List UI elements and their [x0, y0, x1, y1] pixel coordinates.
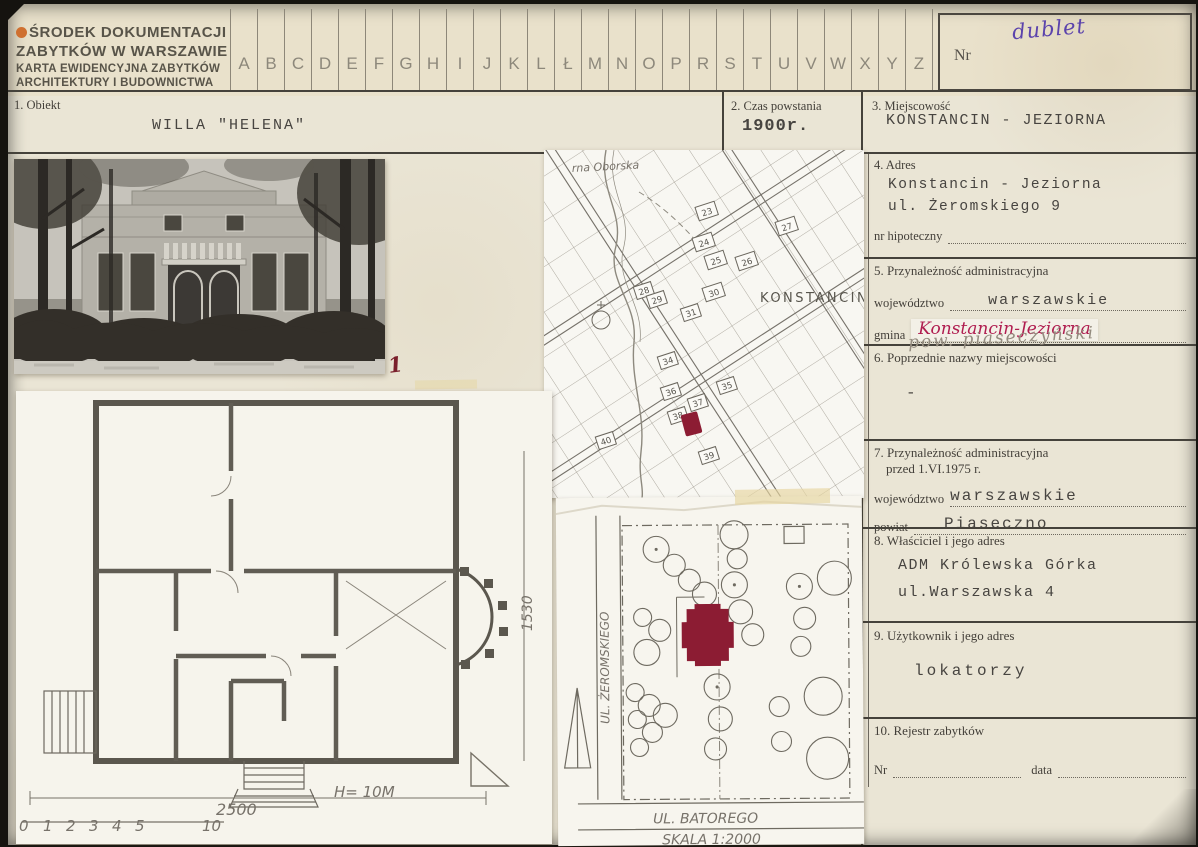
- field10-rejestr: 10. Rejestr zabytków Nr data: [874, 723, 1186, 778]
- field5-gmina-label: gmina: [874, 328, 905, 343]
- field10-nr-label: Nr: [874, 763, 887, 778]
- alphabet-letter: H: [419, 9, 446, 90]
- plan-outer-walls: [96, 403, 456, 761]
- field8-label: 8. Właściciel i jego adres: [874, 533, 1186, 549]
- field4-value-line2: ul. Żeromskiego 9: [888, 199, 1186, 215]
- plan-scale-bar: 0 1 2 3 4 5 10: [19, 817, 224, 835]
- field4-value-line1: Konstancin - Jeziorna: [888, 177, 1186, 193]
- org-line3: KARTA EWIDENCYJNA ZABYTKÓW: [16, 62, 228, 76]
- plan-interior-walls: [96, 403, 456, 761]
- field9-label: 9. Użytkownik i jego adres: [874, 628, 1186, 644]
- field4-label: 4. Adres: [874, 158, 1186, 173]
- org-line2: ZABYTKÓW W WARSZAWIE: [16, 43, 228, 62]
- field9-value: lokatorzy: [914, 662, 1186, 680]
- field3-value: KONSTANCIN - JEZIORNA: [886, 112, 1107, 129]
- alphabet-letter: Z: [905, 9, 932, 90]
- alphabet-letter: B: [257, 9, 284, 90]
- field7-przynaleznosc-1975: 7. Przynależność administracyjna przed 1…: [874, 445, 1186, 535]
- location-map: 23 27 24 25 26 28 29 30 31 34 35 36 37 3…: [544, 150, 864, 498]
- alphabet-letter: Y: [878, 9, 905, 90]
- alphabet-letter: R: [689, 9, 716, 90]
- field-divider: [862, 257, 1196, 259]
- plan-corner-mark: [471, 753, 508, 786]
- field6-label: 6. Poprzednie nazwy miejscowości: [874, 350, 1186, 366]
- tape-stain: [735, 488, 830, 505]
- field1-value: WILLA "HELENA": [152, 117, 306, 134]
- field-divider: [862, 621, 1196, 623]
- plan-left-steps: [44, 691, 96, 753]
- paper-fold-shadow: [1126, 789, 1196, 845]
- alphabet-index-strip: A B C D E F G H I J K L Ł M N O P R S T …: [230, 9, 932, 90]
- alphabet-letter: Ł: [554, 9, 581, 90]
- field7-wojewodztwo-label: województwo: [874, 492, 944, 507]
- floor-plan: 2500 H= 10M 1530 0 1 2 3 4 5 10: [16, 391, 552, 844]
- field-divider: [862, 717, 1196, 719]
- alphabet-letter: S: [716, 9, 743, 90]
- field6-poprzednie-nazwy: 6. Poprzednie nazwy miejscowości -: [874, 350, 1186, 402]
- field5-wojewodztwo-value: warszawskie: [988, 292, 1109, 309]
- siteplan-left-street: UL. ŻEROMSKIEGO: [596, 516, 622, 800]
- alphabet-letter: F: [365, 9, 392, 90]
- field10-data-label: data: [1031, 763, 1052, 778]
- scale-tick: 4: [112, 817, 122, 835]
- alphabet-letter: N: [608, 9, 635, 90]
- alphabet-letter: J: [473, 9, 500, 90]
- scale-tick: 3: [89, 817, 99, 835]
- photo-balustrade: [164, 243, 241, 259]
- scale-tick: 0: [19, 817, 29, 835]
- siteplan-bottom-street: UL. BATOREGO SKALA 1:2000: [578, 802, 864, 846]
- field5-wojewodztwo-label: województwo: [874, 296, 944, 311]
- alphabet-letter: X: [851, 9, 878, 90]
- org-line1: ŚRODEK DOKUMENTACJI: [16, 24, 228, 43]
- logo-dot-icon: [16, 27, 27, 38]
- field7-label-line2: przed 1.VI.1975 r.: [886, 461, 1186, 477]
- plan-dimension-height: 1530: [520, 451, 536, 761]
- alphabet-letter: P: [662, 9, 689, 90]
- plan-height-value: 1530: [520, 595, 536, 631]
- siteplan-outbuilding: [784, 526, 804, 543]
- field-divider: [862, 527, 1196, 529]
- field6-value: -: [906, 384, 1186, 402]
- blank-dotted-line: [893, 777, 1021, 778]
- field7-powiat-value: Piaseczno: [944, 515, 1048, 533]
- alphabet-letter: K: [500, 9, 527, 90]
- alphabet-letter: U: [770, 9, 797, 90]
- scale-tick: 5: [135, 817, 145, 835]
- plan-width-value: 2500: [216, 800, 257, 819]
- siteplan-subject-building: [682, 604, 734, 666]
- field8-wlasciciel: 8. Właściciel i jego adres ADM Królewska…: [874, 533, 1186, 601]
- alphabet-letter: I: [446, 9, 473, 90]
- field7-wojewodztwo-value: warszawskie: [950, 487, 1078, 505]
- villa-photo-drawing: [14, 159, 385, 374]
- field9-uzytkownik: 9. Użytkownik i jego adres lokatorzy: [874, 628, 1186, 680]
- field1-label: 1. Obiekt: [14, 98, 61, 113]
- scanned-heritage-card: ŚRODEK DOKUMENTACJI ZABYTKÓW W WARSZAWIE…: [0, 0, 1198, 847]
- alphabet-letter: A: [230, 9, 257, 90]
- plan-height-label: H= 10M: [334, 783, 395, 801]
- alphabet-letter: L: [527, 9, 554, 90]
- plan-dimension-width: 2500: [30, 791, 486, 819]
- alphabet-letter: G: [392, 9, 419, 90]
- org-line4: ARCHITEKTURY I BUDOWNICTWA: [16, 76, 228, 90]
- alphabet-letter: C: [284, 9, 311, 90]
- nr-box: Nr dublet: [938, 13, 1192, 91]
- scan-corner-artifact: [8, 4, 24, 20]
- divider: [722, 92, 724, 153]
- scale-tick: 2: [66, 817, 76, 835]
- siteplan-street-left-label: UL. ŻEROMSKIEGO: [597, 611, 613, 723]
- field8-value-line2: ul.Warszawska 4: [898, 584, 1186, 601]
- field2-label: 2. Czas powstania: [731, 99, 822, 114]
- siteplan-scale-label: SKALA 1:2000: [662, 832, 761, 846]
- field7-label-line1: 7. Przynależność administracyjna: [874, 445, 1186, 461]
- field10-label: 10. Rejestr zabytków: [874, 723, 1186, 739]
- field5-label: 5. Przynależność administracyjna: [874, 263, 1186, 279]
- site-plan: UL. ŻEROMSKIEGO: [556, 496, 864, 846]
- column-inner-line: [868, 153, 869, 787]
- alphabet-letter: M: [581, 9, 608, 90]
- alphabet-letter: T: [743, 9, 770, 90]
- north-arrow-icon: [564, 688, 591, 768]
- site-plan-drawing: UL. ŻEROMSKIEGO: [556, 496, 864, 846]
- location-map-drawing: 23 27 24 25 26 28 29 30 31 34 35 36 37 3…: [544, 150, 864, 498]
- map-city-label: KONSTANCIN: [760, 291, 864, 306]
- blank-dotted-line: [1058, 777, 1186, 778]
- alphabet-letter: E: [338, 9, 365, 90]
- siteplan-street-bottom-label: UL. BATOREGO: [653, 811, 758, 828]
- nr-label: Nr: [954, 47, 971, 65]
- field-divider: [862, 439, 1196, 441]
- divider: [932, 9, 933, 90]
- header-divider: [8, 90, 1196, 92]
- map-street-grid: [544, 150, 864, 498]
- floor-plan-drawing: 2500 H= 10M 1530 0 1 2 3 4 5 10: [16, 391, 552, 844]
- alphabet-letter: W: [824, 9, 851, 90]
- org-title-block: ŚRODEK DOKUMENTACJI ZABYTKÓW W WARSZAWIE…: [16, 24, 228, 90]
- field2-value: 1900r.: [742, 117, 809, 136]
- villa-photo: [14, 159, 385, 374]
- scale-tick: 10: [202, 817, 221, 835]
- blank-dotted-line: [948, 243, 1186, 244]
- siteplan-trees: [625, 520, 853, 781]
- alphabet-letter: D: [311, 9, 338, 90]
- plan-apse-columns: [460, 567, 508, 669]
- field4-adres: 4. Adres Konstancin - Jeziorna ul. Żerom…: [874, 158, 1186, 244]
- field4-sublabel: nr hipoteczny: [874, 229, 942, 244]
- nr-handwritten-value: dublet: [1011, 14, 1087, 44]
- scale-tick: 1: [43, 817, 53, 835]
- field8-value-line1: ADM Królewska Górka: [898, 557, 1186, 574]
- tape-stain: [415, 379, 477, 389]
- alphabet-letter: V: [797, 9, 824, 90]
- alphabet-letter: O: [635, 9, 662, 90]
